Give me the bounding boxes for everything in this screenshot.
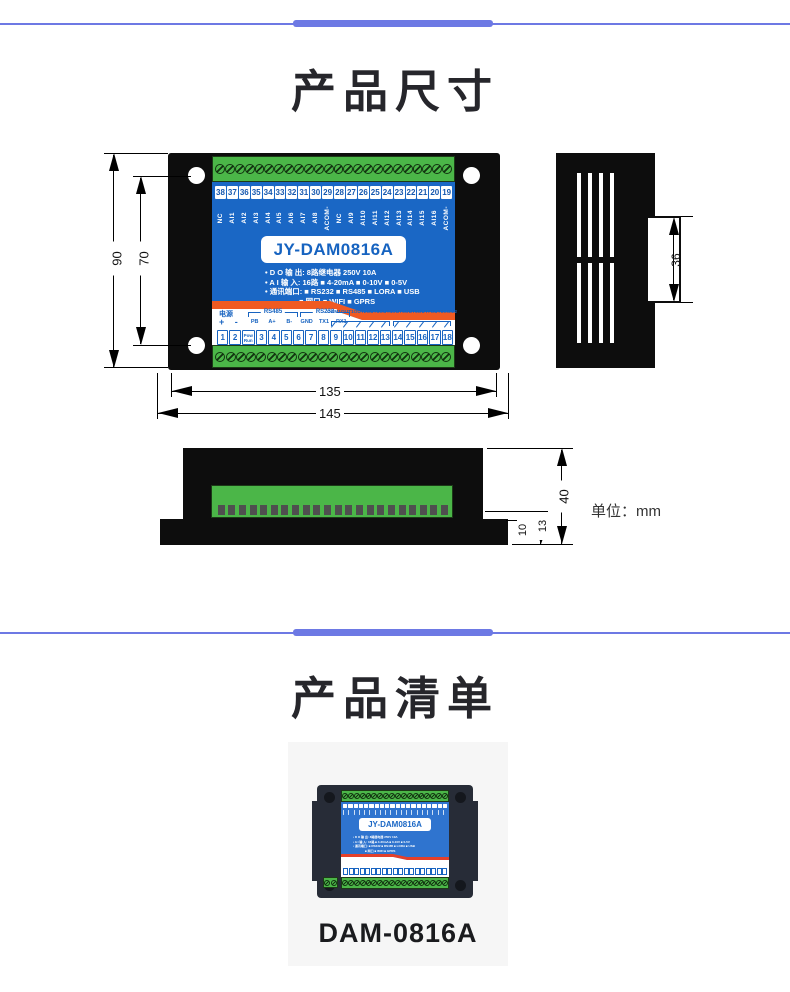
terminal-screw-icon <box>246 352 256 362</box>
arrow-right-icon <box>476 386 496 396</box>
rs485-pins: PBA+B- <box>246 319 298 325</box>
terminal-label-cell: AI13 <box>394 201 405 235</box>
arrow-down-icon <box>669 284 679 302</box>
terminal-label: AI9 <box>348 212 355 224</box>
relay-output-labels: COM1OUT1OUT2OUT3OUT4OUT5OUT6OUT7OUT8COM2 <box>327 310 453 315</box>
terminal-number <box>406 804 410 808</box>
terminal-number: 37 <box>227 186 238 199</box>
terminal-screw-icon <box>422 164 432 174</box>
side-wing <box>473 801 478 881</box>
terminal-label: AI16 <box>431 210 438 226</box>
top-terminal-labels: NCAI1AI2AI3AI4AI5AI6AI7AI8ACOM-NCAI9AI10… <box>215 201 452 235</box>
arrow-down-icon <box>136 327 146 345</box>
terminal-number: 15 <box>404 330 415 345</box>
arrow-up-icon <box>136 176 146 194</box>
terminal-number <box>420 868 425 875</box>
terminal-screw-icon <box>363 164 373 174</box>
terminal-number <box>349 868 354 875</box>
terminal-screw-icon <box>393 164 403 174</box>
dim-front-width-total: 145 <box>316 406 344 421</box>
arrow-up-icon <box>109 153 119 171</box>
terminal-number: 26 <box>358 186 369 199</box>
terminal-screw-icon <box>380 352 390 362</box>
terminal-screw-icon <box>318 352 328 362</box>
terminal-pin-row <box>214 503 452 517</box>
spec-list: • D O 输 出: 8路继电器 250V 10A• A I 输 入: 16路 … <box>353 835 415 853</box>
terminal-number <box>438 804 442 808</box>
pow-run-indicator: PowRun <box>242 330 255 345</box>
terminal-number: 12 <box>367 330 378 345</box>
terminal-screw-icon <box>407 793 413 799</box>
arrow-left-icon <box>158 408 178 418</box>
terminal-pin-icon <box>441 505 448 515</box>
terminal-number: 33 <box>275 186 286 199</box>
terminal-screw-icon <box>343 164 353 174</box>
terminal-screw-icon <box>403 164 413 174</box>
spec-line: • D O 输 出: 8路继电器 250V 10A <box>265 268 420 278</box>
terminal-label <box>359 810 363 815</box>
output-label: COM1 <box>327 310 341 315</box>
output-label: OUT4 <box>379 310 392 315</box>
pin-label: A+ <box>263 319 280 325</box>
relay-contact-icon <box>390 320 403 329</box>
page-title-dimensions: 产品尺寸 <box>0 55 790 120</box>
relay-contact-icon <box>403 320 416 329</box>
relay-contact-icon <box>428 320 441 329</box>
terminal-number <box>354 804 358 808</box>
dim-front-height: 90 <box>110 242 125 276</box>
terminal-screw-icon <box>413 880 419 886</box>
terminal-pin-icon <box>399 505 406 515</box>
terminal-label: ACOM- <box>324 206 331 231</box>
output-label: OUT3 <box>366 310 379 315</box>
terminal-screw-icon <box>314 164 324 174</box>
terminal-screw-icon <box>401 880 407 886</box>
pin-label: PB <box>246 319 263 325</box>
terminal-screw-icon <box>324 164 334 174</box>
terminal-number <box>343 804 347 808</box>
terminal-label <box>364 810 368 815</box>
wiring-cluster: 电源 + - RS485 PBA+B- RS232 GNDTX1RX1 COM1… <box>217 308 453 345</box>
terminal-screw-icon <box>383 164 393 174</box>
terminal-number: 1 <box>217 330 228 345</box>
vent-slot <box>588 263 592 343</box>
terminal-label <box>411 810 415 815</box>
terminal-label-cell: AI3 <box>251 201 262 235</box>
terminal-pin-icon <box>356 505 363 515</box>
terminal-number: 30 <box>310 186 321 199</box>
relay-contact-icon <box>327 320 340 329</box>
terminal-number <box>437 868 442 875</box>
terminal-label-strip <box>343 810 447 815</box>
terminal-screw-icon <box>236 352 246 362</box>
terminal-screw-icon <box>421 352 431 362</box>
terminal-pin-icon <box>367 505 374 515</box>
output-label: OUT6 <box>405 310 418 315</box>
vent-slot <box>577 173 581 257</box>
dim-bottom-step: 13 <box>537 512 549 540</box>
terminal-number: 25 <box>370 186 381 199</box>
terminal-pin-icon <box>409 505 416 515</box>
terminal-label: AI10 <box>360 210 367 226</box>
arrow-left-icon <box>172 386 192 396</box>
section-divider-accent <box>293 629 493 636</box>
page-title-list: 产品清单 <box>0 662 790 727</box>
terminal-label: AI6 <box>288 212 295 224</box>
spec-line: • A I 输 入: 16路 ■ 4-20mA ■ 0-10V ■ 0-5V <box>265 278 420 288</box>
terminal-number <box>401 804 405 808</box>
bottom-terminal-numbers <box>343 868 447 875</box>
terminal-label <box>348 810 352 815</box>
dim-side-tab: 36 <box>669 244 683 276</box>
terminal-number <box>404 868 409 875</box>
terminal-label: AI3 <box>253 212 260 224</box>
terminal-number: 24 <box>382 186 393 199</box>
terminal-screw-icon <box>215 164 225 174</box>
terminal-screw-icon <box>442 793 448 799</box>
terminal-pin-icon <box>271 505 278 515</box>
terminal-label <box>390 810 394 815</box>
terminal-label <box>369 810 373 815</box>
terminal-label-cell: AI1 <box>227 201 238 235</box>
terminal-number: 7 <box>305 330 316 345</box>
terminal-screw-icon <box>373 164 383 174</box>
terminal-number <box>415 868 420 875</box>
terminal-label <box>417 810 421 815</box>
terminal-number <box>343 868 348 875</box>
terminal-screw-icon <box>284 164 294 174</box>
terminal-screw-icon <box>432 164 442 174</box>
terminal-label-cell: AI10 <box>358 201 369 235</box>
terminal-screw-icon <box>401 793 407 799</box>
terminal-label <box>380 810 384 815</box>
terminal-screw-icon <box>348 880 354 886</box>
terminal-number: 35 <box>251 186 262 199</box>
terminal-number: 27 <box>346 186 357 199</box>
terminal-label-cell: AI11 <box>370 201 381 235</box>
terminal-screw-icon <box>277 352 287 362</box>
output-label: OUT1 <box>341 310 354 315</box>
terminal-screw-icon <box>413 164 423 174</box>
terminal-number: 5 <box>281 330 292 345</box>
front-panel: JY-DAM0816A • D O 输 出: 8路继电器 250V 10A• A… <box>341 802 449 877</box>
extension-line <box>496 373 497 397</box>
terminal-number: 3 <box>256 330 267 345</box>
terminal-screw-icon <box>255 164 265 174</box>
terminal-screw-icon <box>324 880 330 886</box>
dim-front-hole-pitch: 70 <box>137 242 152 276</box>
terminal-screw-icon <box>354 793 360 799</box>
terminal-pin-icon <box>218 505 225 515</box>
product-card: JY-DAM0816A • D O 输 出: 8路继电器 250V 10A• A… <box>288 742 508 966</box>
terminal-number: 19 <box>441 186 452 199</box>
terminal-screw-icon <box>328 352 338 362</box>
terminal-screw-icon <box>411 352 421 362</box>
terminal-number <box>385 804 389 808</box>
output-label: COM2 <box>443 310 457 315</box>
arrow-down-icon <box>557 526 567 544</box>
terminal-pin-icon <box>281 505 288 515</box>
mounting-hole <box>463 167 480 184</box>
terminal-screw-icon <box>308 352 318 362</box>
terminal-number <box>365 868 370 875</box>
terminal-number: 28 <box>334 186 345 199</box>
terminal-pin-icon <box>335 505 342 515</box>
terminal-label <box>438 810 442 815</box>
terminal-number: 23 <box>394 186 405 199</box>
terminal-pin-icon <box>239 505 246 515</box>
top-terminal-block <box>212 156 455 182</box>
terminal-screw-icon <box>353 164 363 174</box>
terminal-pin-icon <box>377 505 384 515</box>
terminal-label: AI13 <box>396 210 403 226</box>
terminal-number <box>387 868 392 875</box>
terminal-label: AI7 <box>300 212 307 224</box>
side-view-enclosure <box>556 153 655 368</box>
relay-contact-symbols <box>327 320 453 329</box>
terminal-screw-icon <box>226 352 236 362</box>
relay-contact-icon <box>377 320 390 329</box>
terminal-label-cell: AI15 <box>417 201 428 235</box>
terminal-number: 20 <box>429 186 440 199</box>
terminal-screw-icon <box>225 164 235 174</box>
arrow-up-icon <box>669 217 679 235</box>
extension-line <box>133 345 191 346</box>
terminal-number: 6 <box>293 330 304 345</box>
terminal-label-cell: ACOM- <box>441 201 452 235</box>
terminal-label: AI15 <box>419 210 426 226</box>
terminal-number <box>393 868 398 875</box>
terminal-label: AI12 <box>384 210 391 226</box>
terminal-screw-icon <box>348 793 354 799</box>
terminal-number: 32 <box>286 186 297 199</box>
terminal-pin-icon <box>388 505 395 515</box>
product-name: DAM-0816A <box>288 918 508 949</box>
relay-contact-icon <box>352 320 365 329</box>
terminal-screw-icon <box>360 880 366 886</box>
terminal-number <box>359 804 363 808</box>
terminal-number <box>348 804 352 808</box>
terminal-screw-icon <box>339 352 349 362</box>
terminal-screw-icon <box>304 164 314 174</box>
mounting-hole <box>463 337 480 354</box>
arrow-up-icon <box>557 448 567 466</box>
terminal-screw-icon <box>235 164 245 174</box>
unit-label: 单位：mm <box>591 500 661 521</box>
terminal-number: 4 <box>268 330 279 345</box>
terminal-number: 36 <box>239 186 250 199</box>
terminal-number: 38 <box>215 186 226 199</box>
terminal-screw-icon <box>442 880 448 886</box>
terminal-number <box>431 868 436 875</box>
terminal-number: 31 <box>298 186 309 199</box>
bottom-terminal-block <box>212 345 455 368</box>
terminal-number <box>369 804 373 808</box>
model-nameplate: JY-DAM0816A <box>359 818 431 831</box>
dim-bottom-depth: 40 <box>557 481 572 513</box>
terminal-label-cell: AI4 <box>263 201 274 235</box>
terminal-number: 29 <box>322 186 333 199</box>
model-nameplate: JY-DAM0816A <box>261 236 406 263</box>
relay-contact-icon <box>415 320 428 329</box>
bottom-terminal-block <box>341 877 449 889</box>
terminal-label-cell: AI16 <box>429 201 440 235</box>
terminal-pin-icon <box>228 505 235 515</box>
bottom-view-flange <box>160 519 508 545</box>
terminal-label-cell: AI12 <box>382 201 393 235</box>
terminal-label <box>375 810 379 815</box>
bottom-view-terminal <box>211 485 453 518</box>
terminal-screw-icon <box>264 164 274 174</box>
dim-bottom-flange: 10 <box>517 516 529 544</box>
terminal-pin-icon <box>260 505 267 515</box>
terminal-number <box>411 804 415 808</box>
vent-slot <box>599 173 603 257</box>
output-label: OUT5 <box>392 310 405 315</box>
terminal-number <box>426 868 431 875</box>
terminal-pin-icon <box>430 505 437 515</box>
vent-slot <box>599 263 603 343</box>
terminal-label-cell: NC <box>215 201 226 235</box>
terminal-screw-icon <box>442 164 452 174</box>
terminal-screw-icon <box>349 352 359 362</box>
terminal-label: ACOM- <box>443 206 450 231</box>
product-page: 产品尺寸 38373635343332313029282726252423222… <box>0 0 790 992</box>
output-label: OUT7 <box>418 310 431 315</box>
section-divider-accent <box>293 20 493 27</box>
terminal-number <box>398 868 403 875</box>
terminal-label-cell: AI8 <box>310 201 321 235</box>
terminal-screw-icon <box>400 352 410 362</box>
terminal-pin-icon <box>324 505 331 515</box>
top-terminal-numbers: 3837363534333231302928272625242322212019 <box>215 186 452 199</box>
terminal-screw-icon <box>413 793 419 799</box>
spec-line: • 通讯端口: ■ RS232 ■ RS485 ■ LORA ■ USB <box>265 287 420 297</box>
terminal-number: 9 <box>330 330 341 345</box>
aux-terminal-block <box>323 877 338 888</box>
terminal-screw-icon <box>359 352 369 362</box>
side-wing <box>312 801 317 881</box>
terminal-number: 13 <box>380 330 391 345</box>
terminal-label <box>406 810 410 815</box>
terminal-screw-icon <box>215 352 225 362</box>
terminal-label-cell: AI6 <box>286 201 297 235</box>
terminal-screw-icon <box>267 352 277 362</box>
terminal-screw-icon <box>370 352 380 362</box>
terminal-screw-icon <box>354 880 360 886</box>
extension-line <box>681 216 693 217</box>
terminal-pin-icon <box>250 505 257 515</box>
terminal-label: AI4 <box>265 212 272 224</box>
terminal-number <box>354 868 359 875</box>
terminal-pin-icon <box>303 505 310 515</box>
terminal-label <box>396 810 400 815</box>
terminal-number <box>442 868 447 875</box>
terminal-number: 11 <box>355 330 366 345</box>
terminal-number: 8 <box>318 330 329 345</box>
terminal-label <box>427 810 431 815</box>
arrow-right-icon <box>488 408 508 418</box>
arrow-down-icon <box>109 350 119 368</box>
terminal-screw-icon <box>294 164 304 174</box>
terminal-number <box>409 868 414 875</box>
terminal-pin-icon <box>313 505 320 515</box>
terminal-number: 34 <box>263 186 274 199</box>
terminal-label: AI11 <box>372 210 379 225</box>
terminal-screw-icon <box>245 164 255 174</box>
terminal-number <box>375 804 379 808</box>
relay-contact-icon <box>440 320 453 329</box>
terminal-label <box>401 810 405 815</box>
terminal-number: 21 <box>417 186 428 199</box>
terminal-label <box>354 810 358 815</box>
terminal-number: 2 <box>229 330 240 345</box>
terminal-screw-icon <box>287 352 297 362</box>
terminal-number: 18 <box>442 330 453 345</box>
vent-slot <box>588 173 592 257</box>
terminal-number <box>390 804 394 808</box>
dim-front-width-body: 135 <box>316 384 344 399</box>
vent-slot <box>577 263 581 343</box>
terminal-screw-icon <box>431 352 441 362</box>
terminal-label <box>385 810 389 815</box>
terminal-number: 10 <box>343 330 354 345</box>
spec-list: • D O 输 出: 8路继电器 250V 10A• A I 输 入: 16路 … <box>265 268 420 306</box>
terminal-label: NC <box>217 213 224 223</box>
terminal-label <box>422 810 426 815</box>
terminal-number: 17 <box>429 330 440 345</box>
pin-label: B- <box>281 319 298 325</box>
terminal-number-strip <box>343 804 447 808</box>
terminal-label: AI2 <box>241 212 248 224</box>
terminal-number: 14 <box>392 330 403 345</box>
terminal-number <box>376 868 381 875</box>
bottom-terminal-numbers: 12PowRun 3456789101112131415161718 <box>217 330 453 345</box>
power-polarity: + - <box>219 317 242 327</box>
terminal-label: AI14 <box>407 210 414 226</box>
terminal-pin-icon <box>420 505 427 515</box>
vent-slot <box>610 263 614 343</box>
terminal-number <box>422 804 426 808</box>
terminal-number <box>427 804 431 808</box>
terminal-label: AI5 <box>276 212 283 224</box>
extension-line <box>512 544 573 545</box>
terminal-number <box>380 804 384 808</box>
product-photo: JY-DAM0816A • D O 输 出: 8路继电器 250V 10A• A… <box>317 785 473 898</box>
terminal-pin-icon <box>345 505 352 515</box>
mounting-hole <box>455 880 466 891</box>
terminal-number <box>360 868 365 875</box>
terminal-label <box>343 810 347 815</box>
spec-line: ■ 网口 ■ WIFI ■ GPRS <box>353 849 415 854</box>
terminal-label: AI1 <box>229 212 236 224</box>
front-panel: 3837363534333231302928272625242322212019… <box>212 182 455 345</box>
terminal-screw-icon <box>441 352 451 362</box>
terminal-number <box>417 804 421 808</box>
terminal-label-cell: AI2 <box>239 201 250 235</box>
output-label: OUT2 <box>354 310 367 315</box>
terminal-screw-icon <box>407 880 413 886</box>
terminal-number <box>371 868 376 875</box>
terminal-number: 16 <box>417 330 428 345</box>
terminal-screw-icon <box>334 164 344 174</box>
terminal-screw-icon <box>298 352 308 362</box>
terminal-pin-icon <box>292 505 299 515</box>
terminal-number: 22 <box>406 186 417 199</box>
pin-label: GND <box>298 319 315 325</box>
terminal-label-cell: AI7 <box>298 201 309 235</box>
terminal-label-cell: AI14 <box>406 201 417 235</box>
